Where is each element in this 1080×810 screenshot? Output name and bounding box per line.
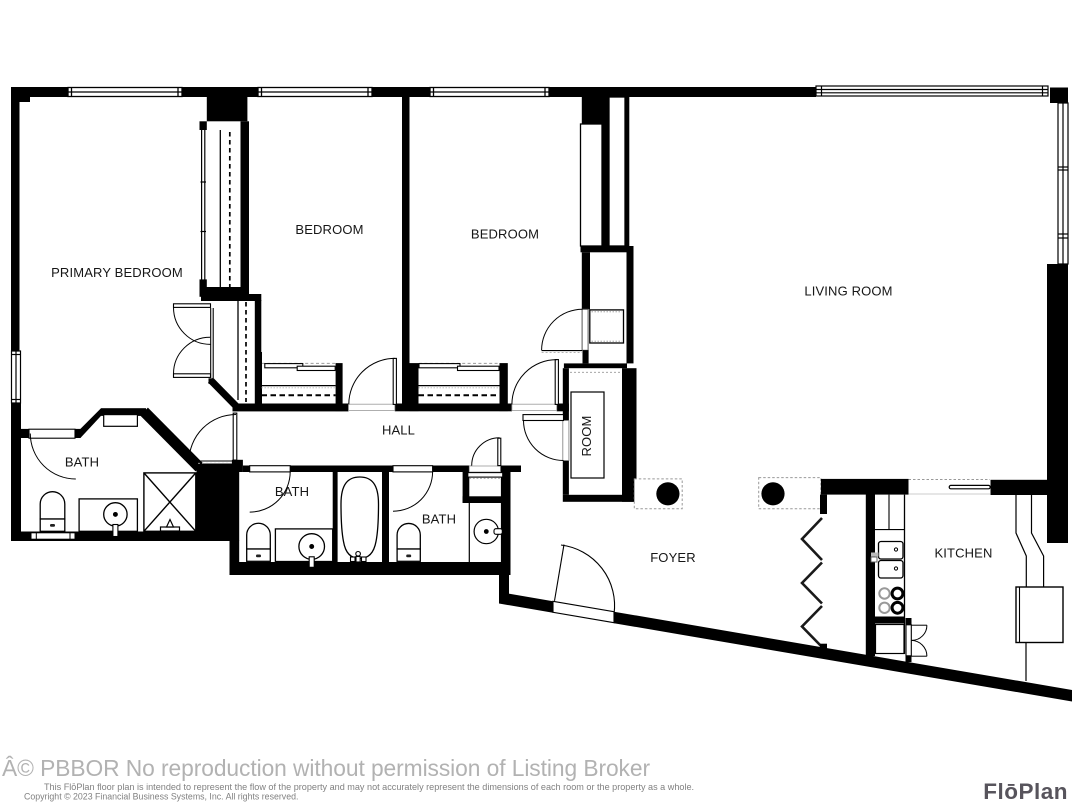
svg-text:FOYER: FOYER — [650, 550, 696, 565]
svg-text:ROOM: ROOM — [579, 415, 594, 456]
svg-text:BATH: BATH — [65, 455, 99, 470]
svg-text:This FlōPlan floor plan is int: This FlōPlan floor plan is intended to r… — [44, 782, 694, 792]
svg-text:PRIMARY BEDROOM: PRIMARY BEDROOM — [51, 265, 183, 280]
svg-text:BATH: BATH — [275, 484, 309, 499]
svg-text:Copyright © 2023 Financial Bus: Copyright © 2023 Financial Business Syst… — [24, 792, 298, 802]
svg-text:BEDROOM: BEDROOM — [295, 222, 363, 237]
svg-text:Â© PBBOR No reproduction witho: Â© PBBOR No reproduction without permiss… — [2, 755, 650, 781]
svg-text:BEDROOM: BEDROOM — [471, 227, 539, 242]
svg-text:KITCHEN: KITCHEN — [934, 546, 992, 561]
svg-text:BATH: BATH — [422, 512, 456, 527]
svg-text:FlōPlan: FlōPlan — [983, 779, 1068, 804]
svg-text:LIVING ROOM: LIVING ROOM — [804, 284, 892, 299]
svg-text:HALL: HALL — [382, 423, 415, 438]
